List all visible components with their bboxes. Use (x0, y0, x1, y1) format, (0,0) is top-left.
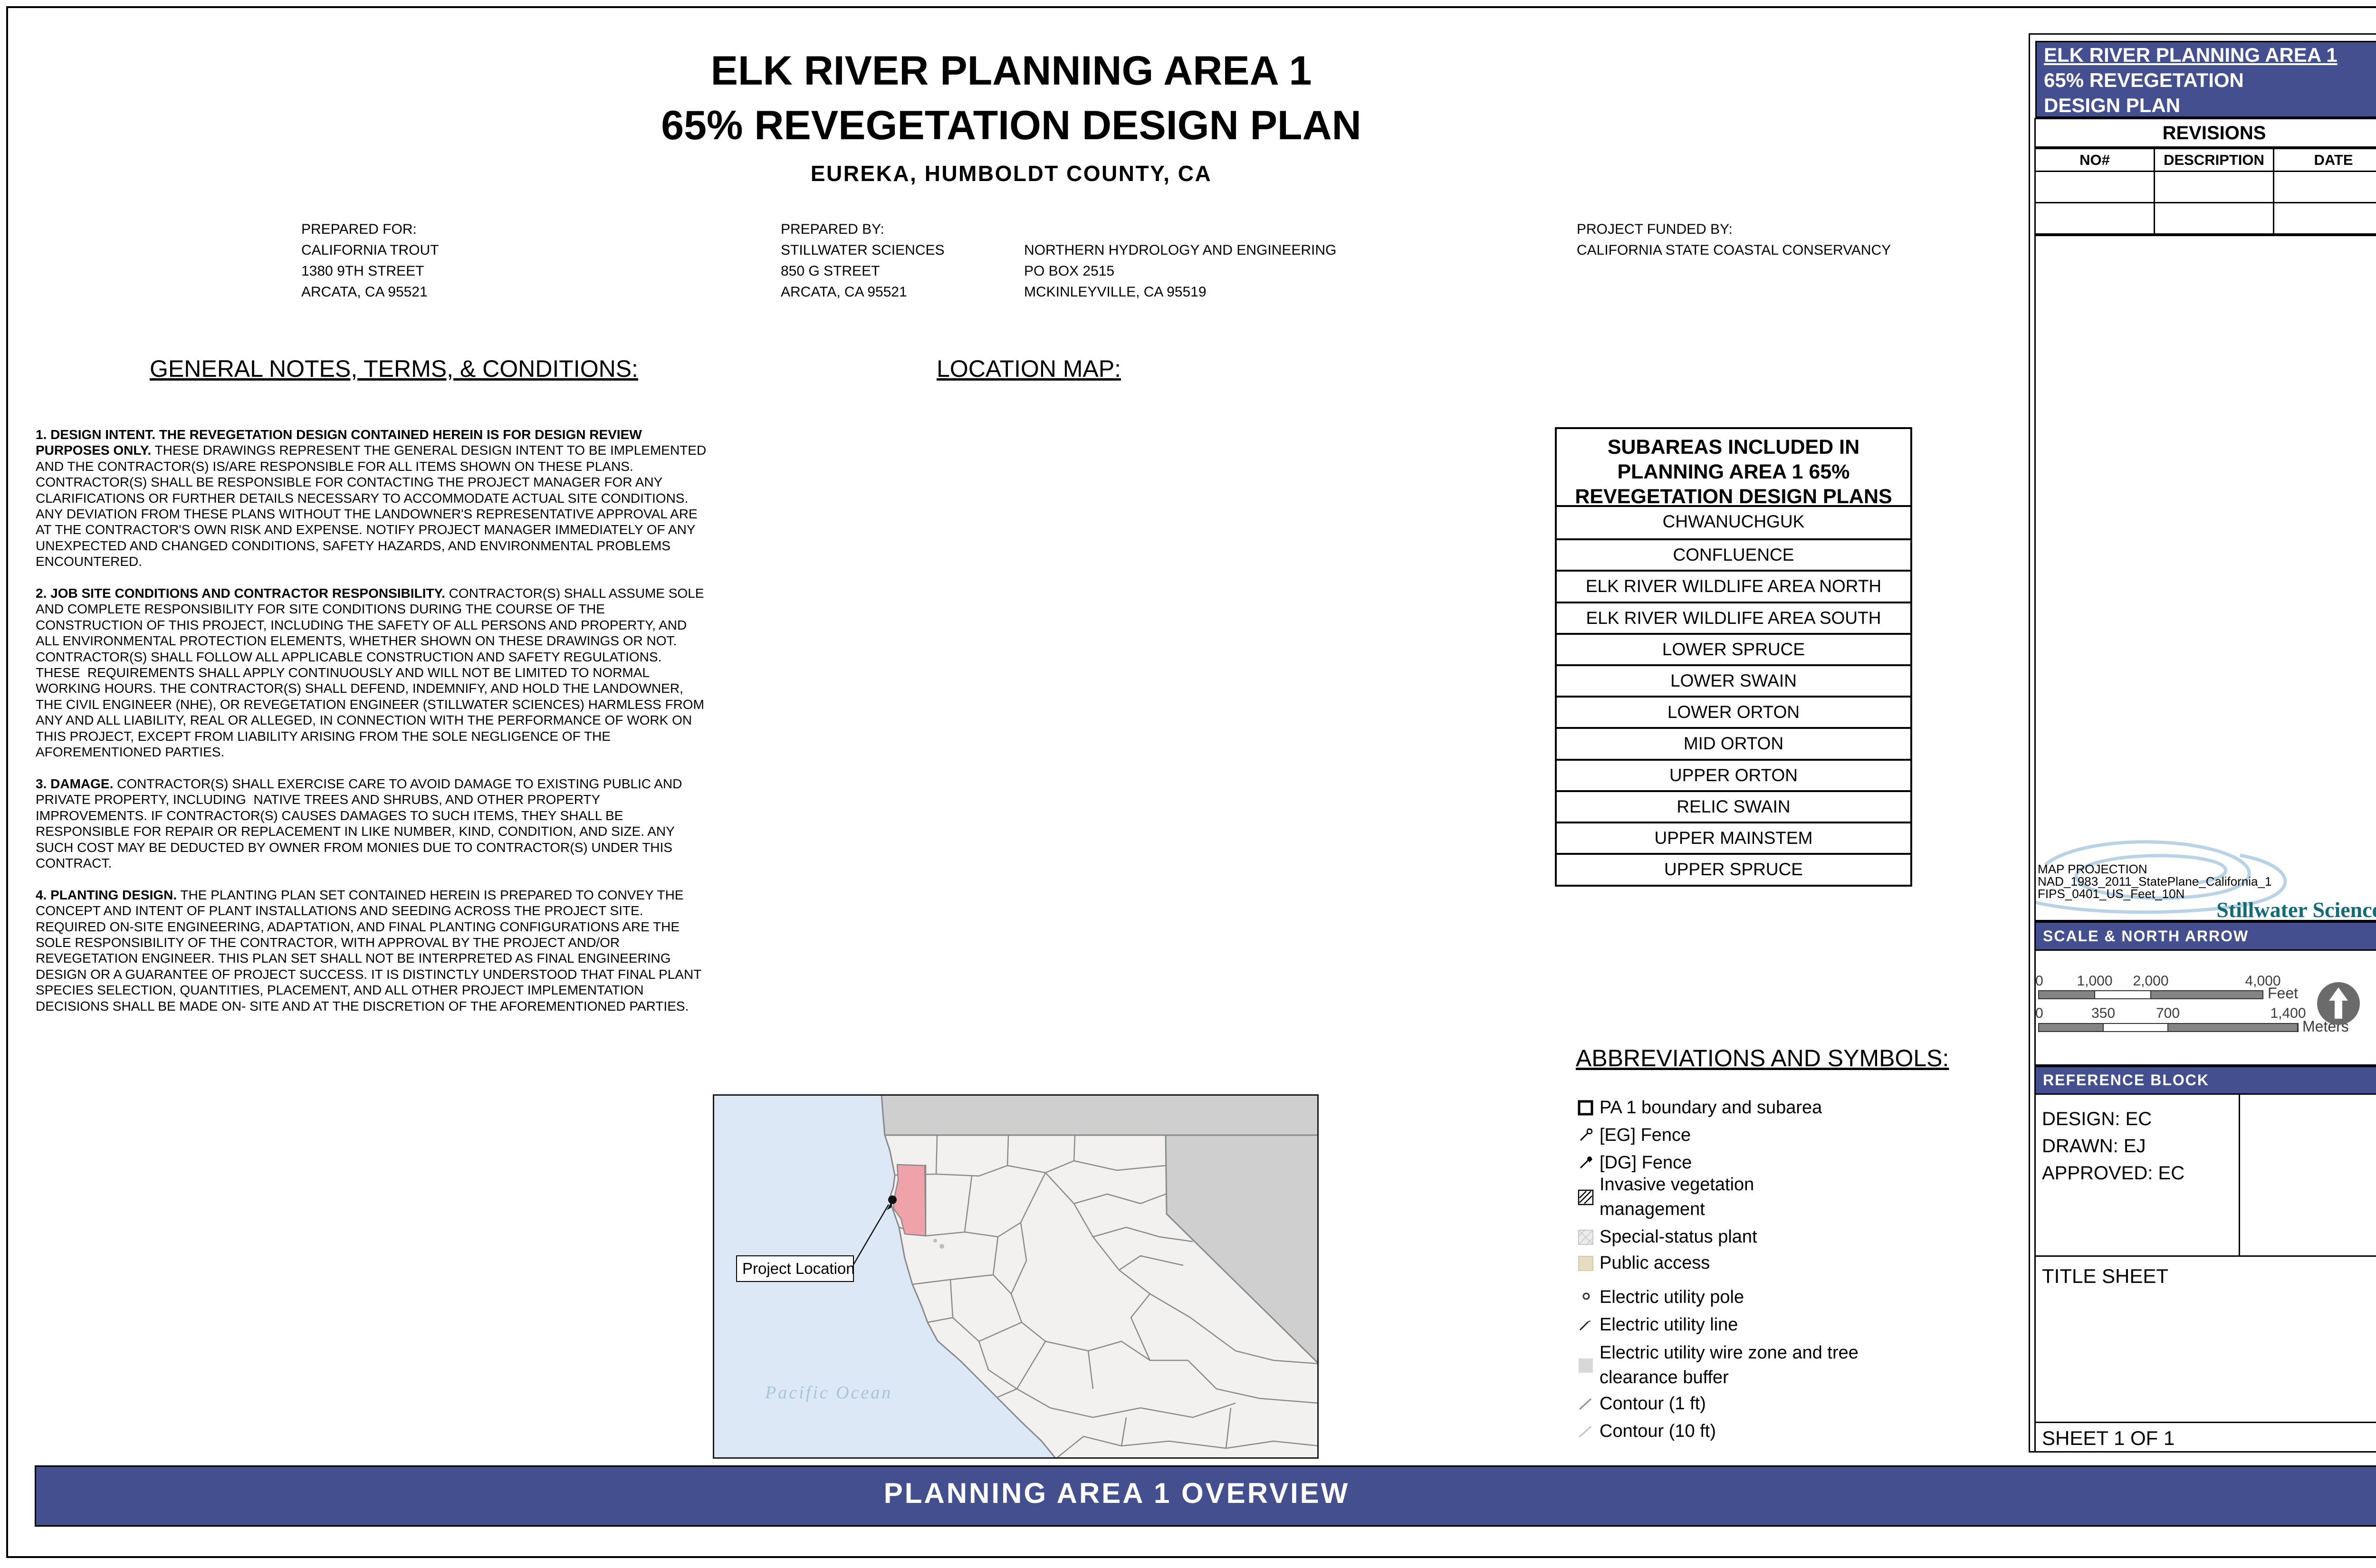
svg-text:Project Location: Project Location (742, 1260, 855, 1277)
svg-text:Pacific Ocean: Pacific Ocean (765, 1383, 892, 1403)
